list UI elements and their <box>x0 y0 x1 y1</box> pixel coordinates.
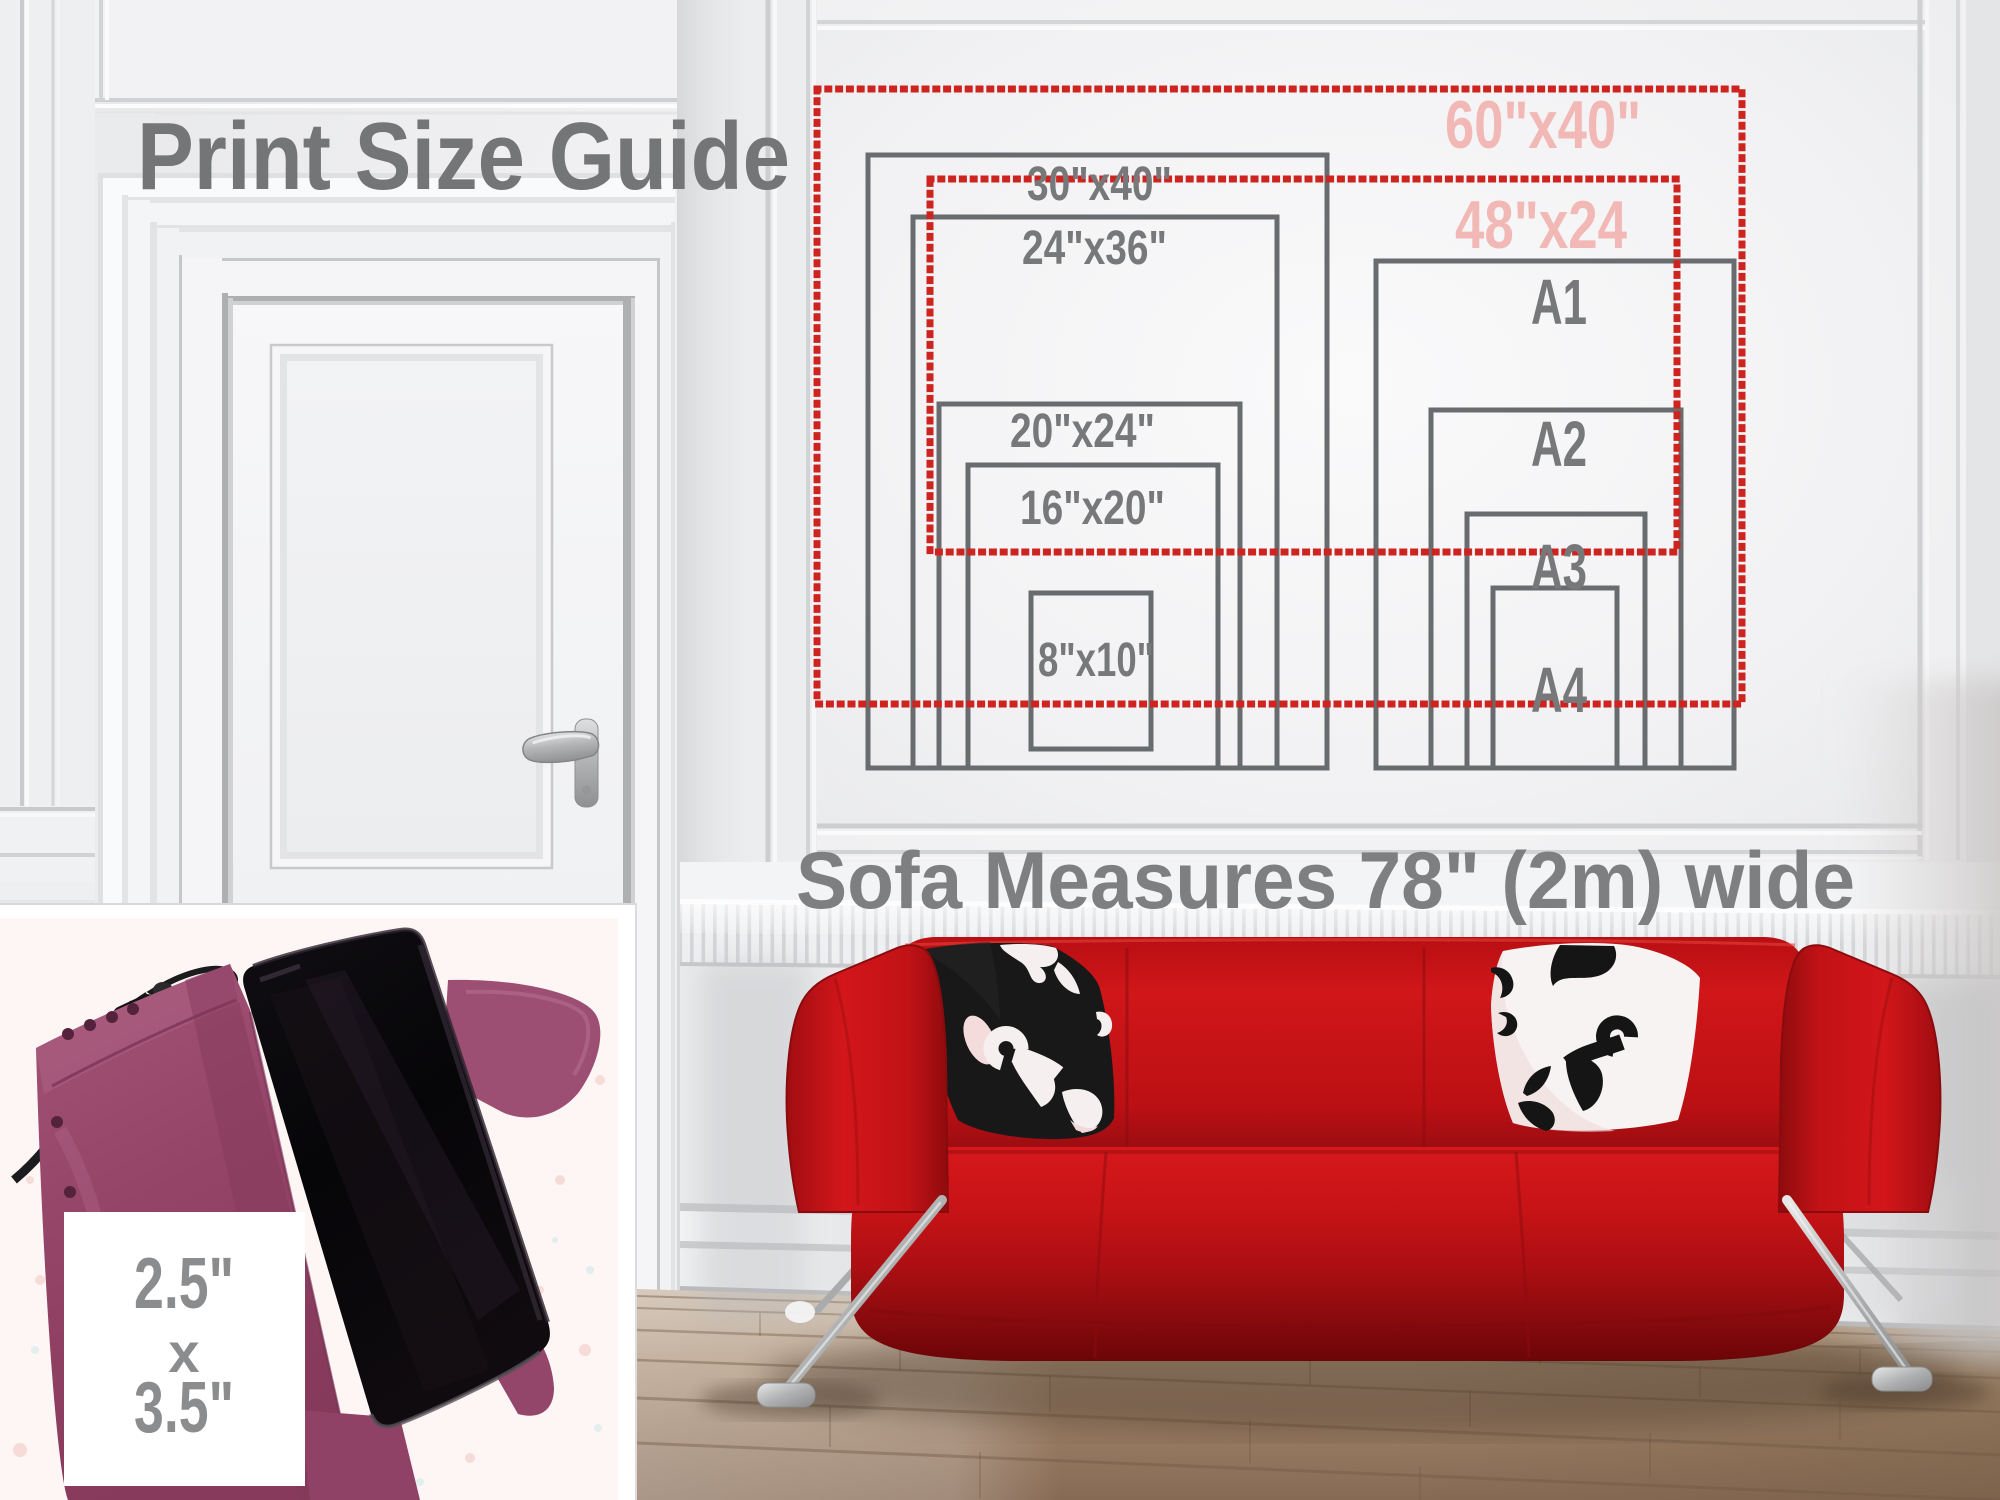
svg-text:A2: A2 <box>1531 408 1587 480</box>
svg-text:48"x24: 48"x24 <box>1455 187 1627 263</box>
svg-text:24"x36": 24"x36" <box>1022 222 1167 275</box>
svg-text:2.5": 2.5" <box>134 1244 234 1324</box>
svg-text:A3: A3 <box>1531 531 1587 603</box>
svg-text:A4: A4 <box>1531 654 1587 726</box>
svg-text:20"x24": 20"x24" <box>1010 405 1155 458</box>
svg-text:A1: A1 <box>1531 266 1587 338</box>
svg-text:16"x20": 16"x20" <box>1020 482 1165 535</box>
svg-text:8"x10": 8"x10" <box>1038 634 1154 687</box>
svg-text:60"x40": 60"x40" <box>1445 87 1641 163</box>
svg-text:Sofa Measures 78" (2m) wide: Sofa Measures 78" (2m) wide <box>796 836 1855 926</box>
svg-text:30"x40": 30"x40" <box>1027 158 1172 211</box>
svg-text:3.5": 3.5" <box>134 1368 234 1448</box>
svg-text:Print Size Guide: Print Size Guide <box>137 103 790 210</box>
